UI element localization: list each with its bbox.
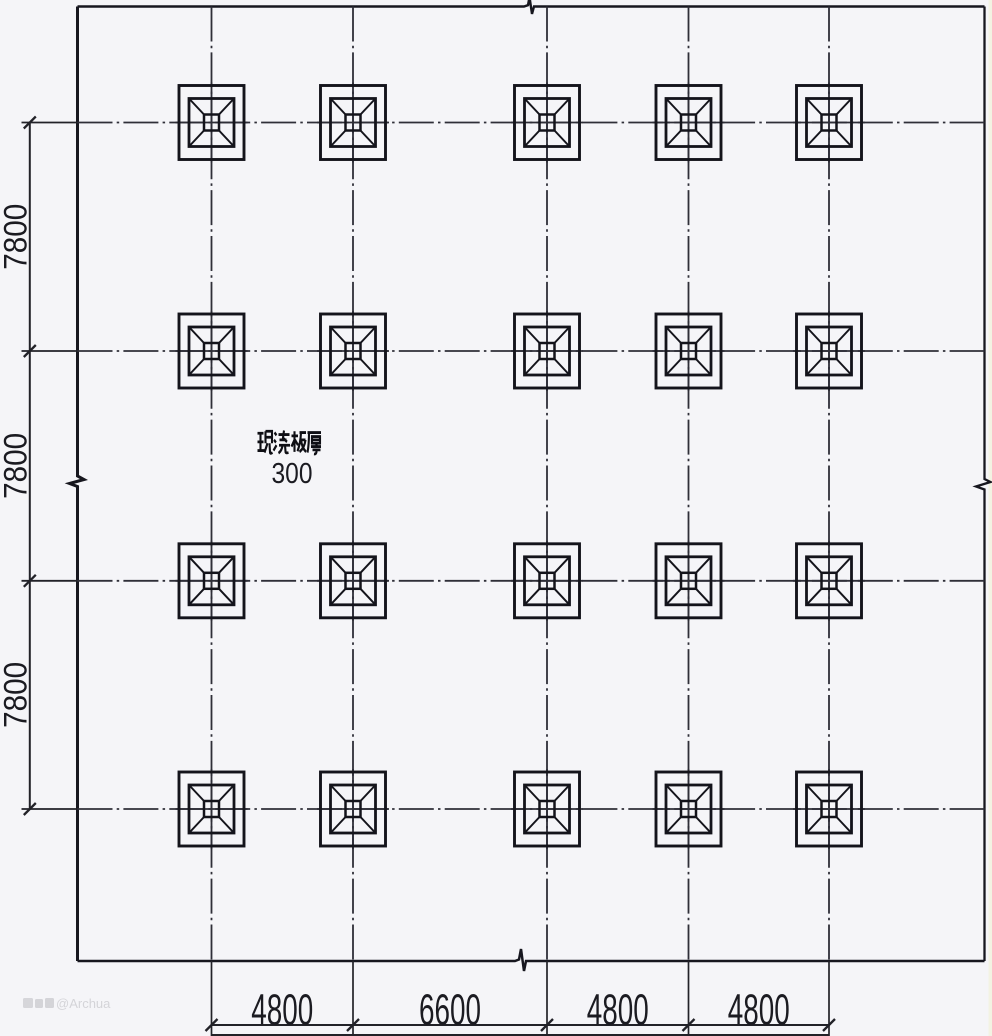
svg-text:4800: 4800 [728, 986, 790, 1035]
svg-text:7800: 7800 [0, 433, 34, 499]
svg-text:4800: 4800 [587, 986, 649, 1035]
svg-text:7800: 7800 [0, 204, 34, 270]
svg-text:4800: 4800 [251, 986, 313, 1035]
svg-text:@Archua: @Archua [56, 996, 111, 1011]
svg-text:7800: 7800 [0, 662, 34, 728]
svg-text:6600: 6600 [419, 986, 481, 1035]
svg-text:300: 300 [272, 458, 313, 490]
